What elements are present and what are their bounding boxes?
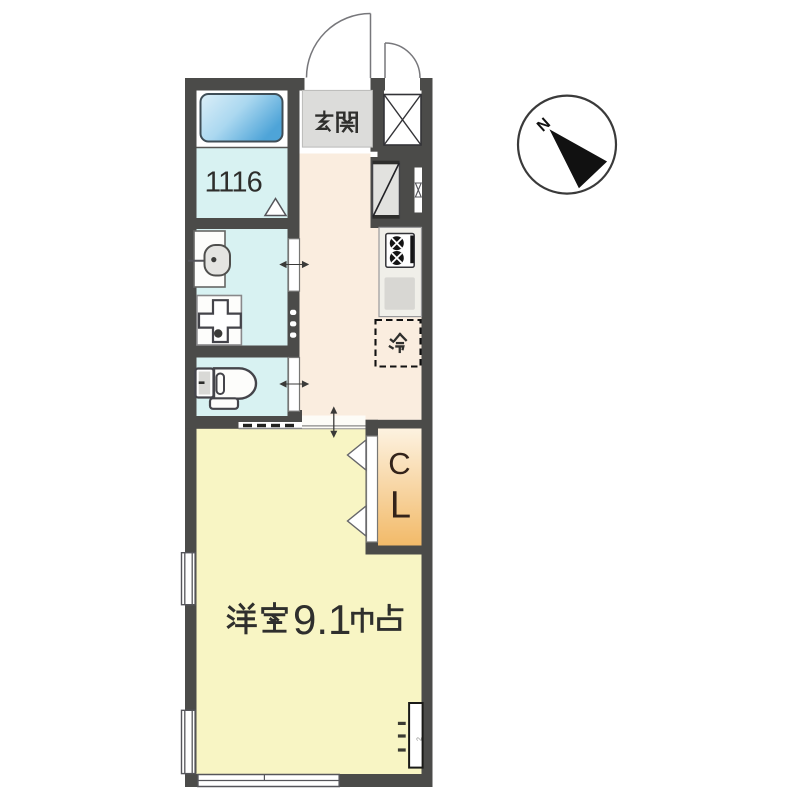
svg-text:1116: 1116 — [205, 167, 262, 199]
svg-text:2: 2 — [417, 737, 424, 741]
svg-text:C: C — [388, 446, 410, 481]
svg-text:L: L — [390, 485, 411, 527]
svg-text:9.1: 9.1 — [293, 596, 351, 643]
